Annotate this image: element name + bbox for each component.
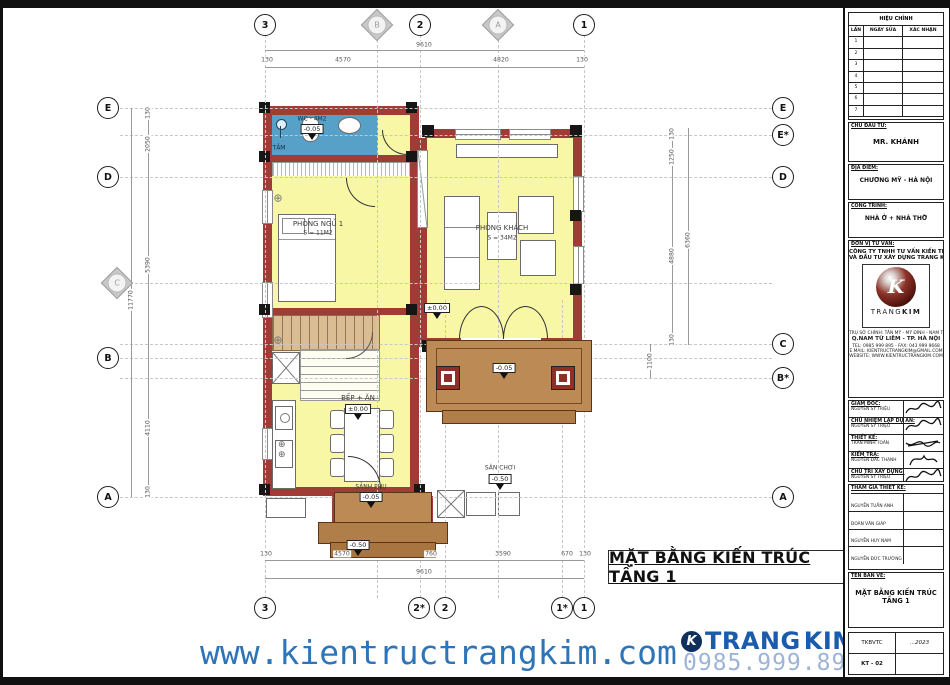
exterior-pad-left [266, 498, 306, 518]
trangkim-icon: K [681, 631, 702, 652]
participants-label: THAM GIA THIẾT KẾ: [851, 486, 943, 494]
dim-bottom-5: 130 [578, 551, 592, 558]
room-label-playground: SÂN CHƠI [485, 465, 515, 472]
elev-arrow [308, 134, 316, 140]
elev-playground: -0.50 [489, 474, 512, 484]
revision-cell [903, 60, 943, 71]
dim-bottom-3: 3590 [494, 551, 512, 558]
signature-scribble [904, 401, 942, 416]
grid-marker-right-Bstar: B* [772, 367, 794, 389]
kitchen-stove: ⊕⊕ [275, 440, 293, 468]
signatory-name: NGUYỄN SỸ TRIỆU [851, 407, 903, 412]
axis-line-A [120, 497, 772, 498]
participant-name: NGUYỄN HUY NAM [851, 539, 903, 544]
dim-right-3: 130 [669, 333, 676, 347]
dim-line [148, 108, 149, 497]
consultant-label: ĐƠN VỊ TƯ VẤN: [851, 242, 943, 247]
drawing-name-value: MẶT BẰNG KIẾN TRÚC TẦNG 1 [849, 589, 943, 605]
wall-right-kitchen [410, 348, 419, 496]
frame-bottom [0, 677, 950, 685]
revision-cell [864, 94, 903, 105]
axis-line-1 [584, 35, 585, 598]
room-area-bedroom: S = 11M2 [303, 230, 332, 237]
room-label-living: PHÒNG KHÁCH [476, 224, 529, 232]
elev-arrow [367, 502, 375, 508]
dim-line [265, 578, 584, 579]
footer-website: www.kientructrangkim.com [200, 633, 677, 672]
dim-top-total: 9610 [415, 42, 433, 49]
elev-entrance: ±0.00 [424, 303, 450, 313]
meta-box: TKBVTC ...2023 KT - 02 [848, 632, 944, 675]
revision-row-num: 6 [849, 94, 864, 105]
dim-left-0: 130 [145, 106, 152, 120]
dim-left-2: 5390 [145, 256, 152, 274]
grid-marker-right-Estar: E* [772, 124, 794, 146]
logo-k-letter: K [888, 276, 905, 298]
revision-cell [864, 72, 903, 83]
grid-marker-bottom-2: 2 [434, 597, 456, 619]
grid-marker-top-A: A [482, 9, 515, 42]
location-box: ĐỊA ĐIỂM: CHƯƠNG MỸ - HÀ NỘI [848, 164, 944, 200]
window-bedroom-left-1 [262, 190, 273, 224]
dining-chair [330, 434, 345, 453]
dim-right-1: 1250 [669, 148, 676, 166]
consultant-name-2: VÀ ĐẦU TƯ XÂY DỰNG TRANG KIM [849, 255, 943, 261]
wall-bedroom-bottom [263, 308, 418, 315]
grid-marker-right-C: C [772, 333, 794, 355]
elev-main-porch: -0.05 [493, 363, 516, 373]
grid-marker-bottom-1: 1 [573, 597, 595, 619]
dining-chair [379, 434, 394, 453]
footer-phone: 0985.999.895 [683, 650, 861, 676]
participant-row: ĐOÀN VĂN GIÁP [849, 512, 943, 530]
consultant-box: ĐƠN VỊ TƯ VẤN: CÔNG TY TNHH TƯ VẤN KIẾN … [848, 240, 944, 398]
project-box: CÔNG TRÌNH: NHÀ Ở + NHÀ THỜ [848, 202, 944, 238]
signatory-row: CHỦ NHIỆM LẬP DỰ ÁN:NGUYỄN SỸ TRIỆU [849, 418, 943, 435]
exterior-pad-right [466, 492, 496, 516]
logo-word-trang: TRANG [871, 308, 902, 316]
dim-right-2: 4880 [669, 247, 676, 265]
dining-chair [379, 458, 394, 477]
grid-marker-top-3: 3 [254, 14, 276, 36]
project-label: CÔNG TRÌNH: [851, 204, 943, 209]
revision-cell [903, 49, 943, 60]
signature-cell [903, 469, 943, 482]
dim-bottom-2: 760 [424, 551, 438, 558]
wall-living-top [425, 129, 582, 138]
room-area-living: S = 34M2 [487, 235, 516, 242]
signature-cell [903, 401, 943, 417]
elev-arrow [354, 550, 362, 556]
revision-cell [864, 37, 903, 48]
trangkim-sphere-logo: K [876, 267, 916, 307]
dim-line [265, 560, 584, 561]
participant-cell [903, 494, 943, 511]
grid-marker-top-2: 2 [409, 14, 431, 36]
dining-chair [330, 410, 345, 429]
floor-plan: ⊕ ⊕ ⊕⊕ WC - 4M2 -0.05 [0, 0, 843, 625]
participant-cell [903, 530, 943, 547]
project-value: NHÀ Ở + NHÀ THỜ [849, 215, 943, 222]
signature-cell [903, 418, 943, 434]
participant-row: NGUYỄN TUẤN ANH [849, 494, 943, 512]
dim-left-3: 4110 [145, 419, 152, 437]
participant-name: NGUYỄN TUẤN ANH [851, 504, 903, 509]
meta-drawing-code: KT - 02 [849, 654, 896, 674]
room-label-bedroom: PHÒNG NGỦ 1 [293, 220, 343, 228]
revision-cell [864, 83, 903, 94]
investor-value: MR. KHÁNH [849, 138, 943, 146]
drawing-name-label: TÊN BẢN VẼ: [851, 574, 943, 579]
dim-line [265, 67, 584, 68]
revision-cell [903, 37, 943, 48]
signature-scribble [904, 469, 942, 482]
consultant-logo-frame: K TRANGKIM [862, 264, 930, 328]
dim-top-3: 130 [575, 57, 589, 64]
grid-marker-bottom-1star: 1* [551, 597, 573, 619]
dim-line [265, 50, 584, 51]
participant-cell [903, 547, 943, 564]
revision-cell [864, 60, 903, 71]
dim-bottom-total: 9610 [415, 569, 433, 576]
meta-stage: TKBVTC [849, 633, 896, 654]
elev-wc: -0.05 [301, 124, 324, 134]
participant-name: ĐOÀN VĂN GIÁP [851, 522, 903, 527]
elev-arrow [354, 414, 362, 420]
revision-cell [864, 49, 903, 60]
shower-stem [280, 126, 281, 138]
grid-marker-right-A: A [772, 486, 794, 508]
grid-marker-label: A [495, 20, 500, 29]
revision-row-num: 1 [849, 37, 864, 48]
column [406, 151, 417, 162]
revision-cell [903, 83, 943, 94]
grid-marker-left-A: A [97, 486, 119, 508]
signatory-row: THIẾT KẾ:TRẦN MINH TOÀN [849, 435, 943, 452]
shower-icon [276, 119, 287, 130]
architectural-drawing-sheet: ⊕ ⊕ ⊕⊕ WC - 4M2 -0.05 [0, 0, 950, 685]
participant-row: NGUYỄN HUY NAM [849, 530, 943, 548]
consultant-website: WEBSITE: WWW.KIENTRUCTRANGKIM.COM [849, 354, 943, 359]
room-label-kitchen: BẾP + ĂN [341, 394, 375, 402]
grid-marker-label: B [374, 21, 380, 30]
sideboard [456, 144, 558, 158]
revision-table: HIỆU CHỈNH LẦN NGÀY SỬA XÁC NHẬN 1 2 3 4… [848, 12, 944, 120]
elev-arrow [500, 373, 508, 379]
revision-row-num: 7 [849, 106, 864, 117]
signatory-row: GIÁM ĐỐC:NGUYỄN SỸ TRIỆU [849, 401, 943, 418]
shaft-box [437, 490, 465, 518]
revision-cell [903, 94, 943, 105]
investor-box: CHỦ ĐẦU TƯ: MR. KHÁNH [848, 122, 944, 162]
side-porch-step-1 [318, 522, 448, 544]
sofa-large [444, 196, 480, 290]
side-porch [334, 492, 432, 524]
consultant-address-2: Q.NAM TỪ LIÊM - TP. HÀ NỘI [849, 336, 943, 342]
dim-bottom-0: 130 [259, 551, 273, 558]
exterior-pad-right-2 [498, 492, 520, 516]
axis-line-3 [265, 35, 266, 598]
revision-col: LẦN [849, 26, 864, 37]
column [570, 284, 581, 295]
signatory-name: NGUYỄN ĐẮC THẠNH [851, 458, 903, 463]
grid-marker-top-B: B [361, 9, 394, 42]
window-living-right-2 [573, 246, 584, 284]
room-label-bath: TẮM [273, 145, 286, 152]
logo-wordmark: TRANGKIM [863, 308, 929, 316]
axis-line-E [120, 108, 772, 109]
porch-step [442, 410, 576, 424]
axis-line-D [120, 177, 772, 178]
grid-marker-left-B: B [97, 347, 119, 369]
participants-box: THAM GIA THIẾT KẾ: NGUYỄN TUẤN ANH ĐOÀN … [848, 484, 944, 570]
revision-header-row: LẦN NGÀY SỬA XÁC NHẬN 1 2 3 4 5 6 7 [849, 25, 943, 117]
radiator-mark: ⊕ [273, 334, 282, 347]
location-label: ĐỊA ĐIỂM: [851, 166, 943, 171]
revision-row-num: 5 [849, 83, 864, 94]
participant-cell [903, 512, 943, 529]
drawing-name-box: TÊN BẢN VẼ: MẶT BẰNG KIẾN TRÚC TẦNG 1 [848, 572, 944, 628]
grid-marker-bottom-3: 3 [254, 597, 276, 619]
porch-column-left [436, 366, 460, 390]
signatory-name: NGUYỄN SỸ TRIỆU [851, 475, 903, 480]
revision-col: NGÀY SỬA [864, 26, 903, 37]
blanket-line [279, 239, 335, 240]
room-label-wc: WC - 4M2 [298, 116, 327, 123]
signatory-name: TRẦN MINH TOÀN [851, 441, 903, 446]
dining-chair [330, 458, 345, 477]
dim-left-4: 130 [145, 485, 152, 499]
grid-marker-top-1: 1 [573, 14, 595, 36]
signatory-row: KIỂM TRA:NGUYỄN ĐẮC THẠNH [849, 452, 943, 469]
signatories-box: GIÁM ĐỐC:NGUYỄN SỸ TRIỆU CHỦ NHIỆM LẬP D… [848, 400, 944, 482]
dim-top-1: 4570 [334, 57, 352, 64]
revision-col: XÁC NHẬN [903, 26, 943, 37]
elev-side-porch: -0.05 [360, 492, 383, 502]
title-block: HIỆU CHỈNH LẦN NGÀY SỬA XÁC NHẬN 1 2 3 4… [843, 8, 949, 677]
niche-flue [417, 150, 428, 228]
participant-row: NGUYỄN ĐỨC TRƯỜNG [849, 547, 943, 564]
drawing-title: MẶT BẰNG KIẾN TRÚC TẦNG 1 [608, 550, 844, 584]
grid-marker-left-E: E [97, 97, 119, 119]
revision-title: HIỆU CHỈNH [849, 13, 943, 25]
revision-row-num: 2 [849, 49, 864, 60]
signature-cell [903, 435, 943, 451]
grid-marker-bottom-2star: 2* [408, 597, 430, 619]
signature-scribble [904, 452, 942, 467]
window-living-right-1 [573, 176, 584, 212]
signature-scribble [904, 418, 942, 433]
duct-shaft [272, 352, 300, 384]
logo-word-kim: KIM [902, 308, 921, 316]
signature-scribble [904, 435, 942, 450]
sink-icon [338, 117, 361, 134]
location-value: CHƯƠNG MỸ - HÀ NỘI [849, 177, 943, 184]
dim-top-0: 130 [260, 57, 274, 64]
revision-cell [864, 106, 903, 117]
wall-wc-bottom [263, 155, 418, 162]
wardrobe-hatch [272, 162, 412, 177]
investor-label: CHỦ ĐẦU TƯ: [851, 124, 943, 129]
dim-left-1: 2050 [145, 135, 152, 153]
participant-name: NGUYỄN ĐỨC TRƯỜNG [851, 557, 903, 562]
elev-arrow [496, 484, 504, 490]
elev-kitchen: ±0.00 [345, 404, 371, 414]
radiator-mark: ⊕ [273, 192, 282, 205]
revision-cell [903, 106, 943, 117]
dim-right-total: 6360 [685, 231, 692, 249]
column [406, 304, 417, 315]
column [570, 210, 581, 221]
dining-chair [379, 410, 394, 429]
dim-right-0: 130 [669, 127, 676, 141]
elev-arrow [433, 313, 441, 319]
signature-cell [903, 452, 943, 468]
wall-living-right [573, 129, 582, 347]
grid-marker-left-D: D [97, 166, 119, 188]
revision-cell [903, 72, 943, 83]
kitchen-sink [275, 406, 293, 430]
meta-year: ...2023 [896, 633, 943, 654]
signatory-name: NGUYỄN SỸ TRIỆU [851, 424, 903, 429]
dim-top-2: 4820 [492, 57, 510, 64]
meta-empty [896, 654, 943, 674]
porch-column-right [551, 366, 575, 390]
grid-marker-right-D: D [772, 166, 794, 188]
signatory-row: CHỦ TRÌ XÂY DỰNG:NGUYỄN SỸ TRIỆU [849, 469, 943, 482]
armchair-2 [520, 240, 556, 276]
sofa-cushion-line [445, 257, 479, 258]
grid-marker-label: C [114, 279, 120, 288]
dim-bottom-4: 670 [560, 551, 574, 558]
elev-step: -0.50 [347, 540, 370, 550]
meta-grid: TKBVTC ...2023 KT - 02 [849, 633, 943, 674]
dim-left-total: 11770 [128, 289, 135, 311]
dim-right-offset: 1100 [647, 352, 654, 370]
revision-row-num: 4 [849, 72, 864, 83]
dim-bottom-1: 4570 [333, 551, 351, 558]
sofa-cushion-line [445, 227, 479, 228]
axis-line-C-section [125, 283, 772, 284]
revision-row-num: 3 [849, 60, 864, 71]
grid-marker-right-E: E [772, 97, 794, 119]
